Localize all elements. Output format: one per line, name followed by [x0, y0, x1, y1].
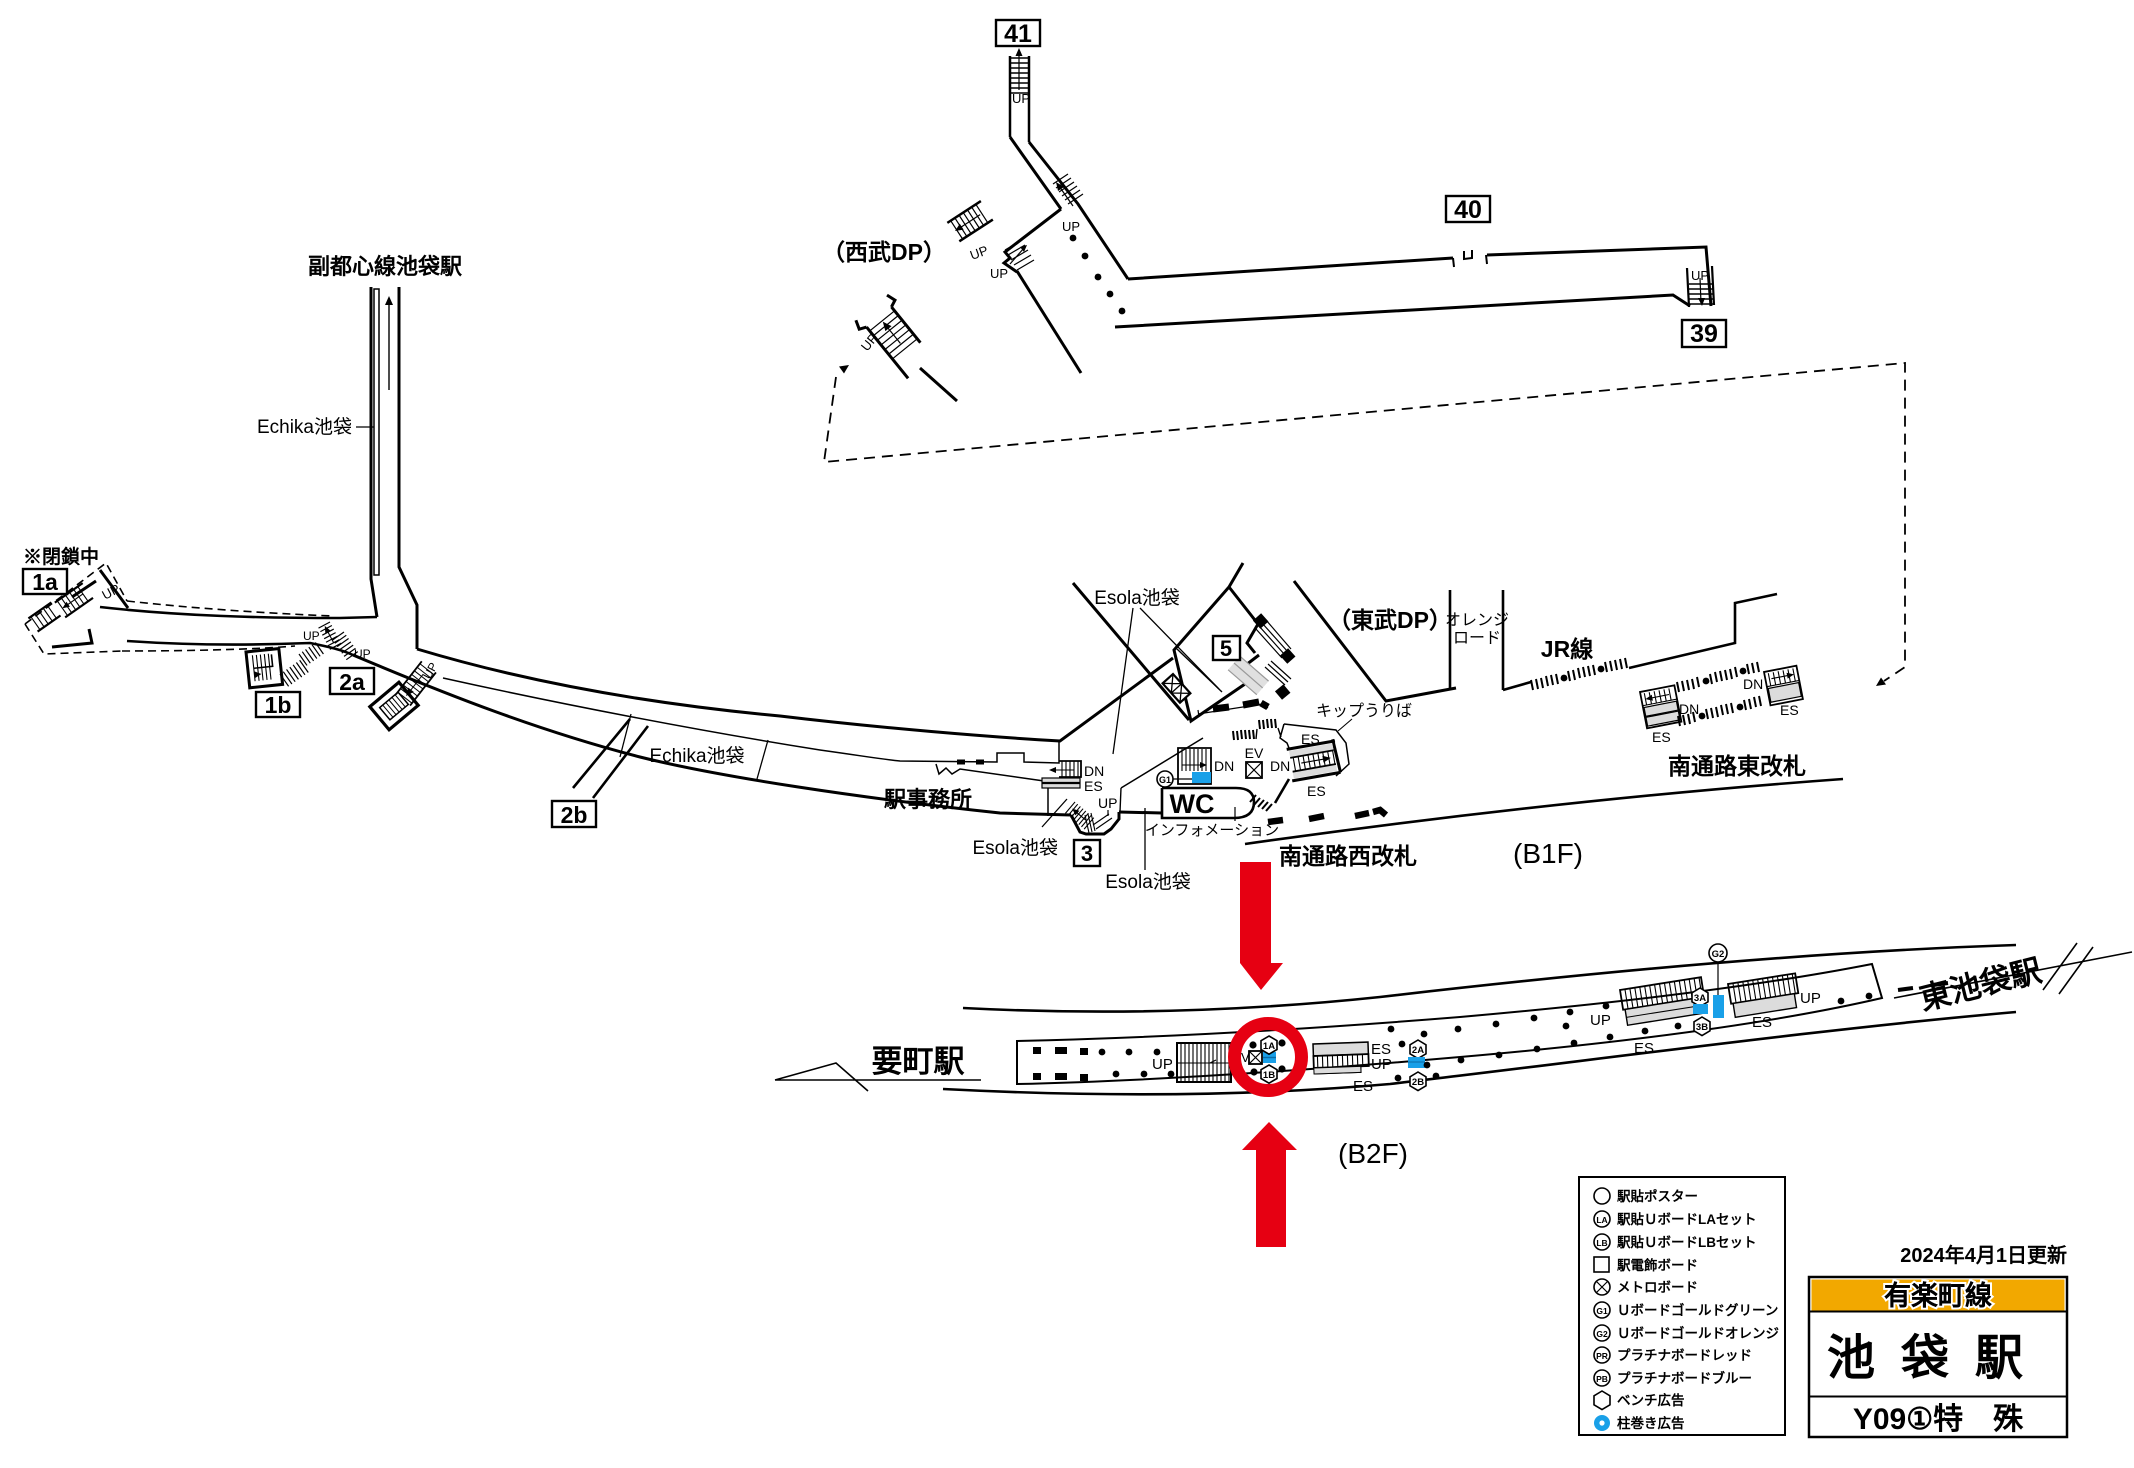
svg-text:池袋駅: 池袋駅 — [1827, 1332, 2049, 1385]
svg-text:LB: LB — [1596, 1238, 1607, 1248]
svg-text:G2: G2 — [1712, 949, 1725, 960]
svg-text:UP: UP — [1098, 795, 1117, 811]
svg-text:5: 5 — [1220, 636, 1232, 661]
svg-text:2a: 2a — [339, 669, 365, 695]
svg-text:副都心線池袋駅: 副都心線池袋駅 — [308, 254, 462, 279]
svg-text:UP: UP — [1371, 1056, 1392, 1073]
svg-text:DN: DN — [1084, 763, 1104, 779]
svg-text:JR線: JR線 — [1541, 636, 1593, 662]
svg-text:UP: UP — [303, 629, 320, 643]
svg-text:Ｕボードゴールドオレンジ: Ｕボードゴールドオレンジ — [1617, 1325, 1779, 1341]
svg-text:(B1F): (B1F) — [1513, 838, 1583, 869]
svg-text:PB: PB — [1596, 1374, 1608, 1384]
svg-text:駅事務所: 駅事務所 — [884, 787, 972, 812]
svg-text:ES: ES — [1780, 702, 1799, 718]
svg-text:Echika池袋: Echika池袋 — [649, 745, 744, 767]
svg-text:1A: 1A — [1263, 1041, 1275, 1052]
svg-text:WC: WC — [1170, 789, 1215, 819]
svg-text:UP: UP — [1062, 219, 1080, 234]
svg-text:Echika池袋: Echika池袋 — [257, 416, 352, 438]
svg-text:南通路西改札: 南通路西改札 — [1279, 843, 1417, 869]
svg-text:ロード: ロード — [1453, 630, 1501, 647]
svg-text:G1: G1 — [1159, 775, 1171, 785]
svg-text:1a: 1a — [32, 569, 58, 595]
svg-text:Esola池袋: Esola池袋 — [972, 837, 1058, 859]
svg-text:ES: ES — [1084, 778, 1103, 794]
svg-text:駅貼ポスター: 駅貼ポスター — [1617, 1188, 1698, 1204]
svg-text:柱巻き広告: 柱巻き広告 — [1617, 1415, 1685, 1431]
svg-text:インフォメーション: インフォメーション — [1145, 822, 1279, 839]
svg-text:南通路東改札: 南通路東改札 — [1668, 753, 1806, 779]
svg-text:ES: ES — [1634, 1040, 1654, 1057]
svg-text:ベンチ広告: ベンチ広告 — [1617, 1392, 1685, 1408]
svg-text:メトロボード: メトロボード — [1617, 1280, 1698, 1295]
svg-text:1b: 1b — [265, 692, 292, 718]
svg-text:41: 41 — [1004, 20, 1032, 48]
svg-text:(B2F): (B2F) — [1338, 1138, 1408, 1169]
svg-text:UP: UP — [1590, 1012, 1611, 1029]
svg-text:2024年4月1日更新: 2024年4月1日更新 — [1900, 1243, 2067, 1267]
svg-text:2B: 2B — [1412, 1077, 1424, 1088]
svg-text:要町駅: 要町駅 — [872, 1044, 965, 1079]
svg-text:ES: ES — [1307, 783, 1326, 799]
svg-text:駅貼ＵボードLBセット: 駅貼ＵボードLBセット — [1617, 1234, 1757, 1250]
svg-text:UP: UP — [1152, 1056, 1173, 1073]
svg-text:3B: 3B — [1696, 1022, 1708, 1033]
svg-text:Esola池袋: Esola池袋 — [1094, 587, 1180, 609]
svg-text:ES: ES — [1652, 729, 1671, 745]
svg-text:ES: ES — [1301, 731, 1320, 747]
svg-text:キップうりば: キップうりば — [1316, 702, 1412, 720]
svg-text:DN: DN — [1270, 758, 1290, 774]
svg-text:オレンジ: オレンジ — [1445, 612, 1509, 629]
svg-text:UP: UP — [1691, 268, 1709, 283]
svg-text:PR: PR — [1596, 1351, 1608, 1361]
svg-text:※閉鎖中: ※閉鎖中 — [23, 545, 99, 568]
svg-text:（西武DP）: （西武DP） — [822, 239, 946, 265]
svg-text:（東武DP）: （東武DP） — [1328, 607, 1452, 633]
svg-text:40: 40 — [1454, 196, 1482, 224]
svg-text:Ｕボードゴールドグリーン: Ｕボードゴールドグリーン — [1617, 1302, 1778, 1318]
svg-text:G2: G2 — [1596, 1329, 1608, 1339]
svg-text:Esola池袋: Esola池袋 — [1105, 871, 1191, 893]
svg-text:UP: UP — [1800, 990, 1821, 1007]
svg-text:駅貼ＵボードLAセット: 駅貼ＵボードLAセット — [1617, 1211, 1757, 1227]
svg-text:有楽町線: 有楽町線 — [1884, 1280, 1992, 1311]
svg-text:ES: ES — [1353, 1078, 1373, 1095]
svg-text:1B: 1B — [1263, 1070, 1275, 1081]
svg-text:UP: UP — [1012, 91, 1030, 106]
svg-text:プラチナボードブルー: プラチナボードブルー — [1617, 1370, 1752, 1386]
svg-text:Y09①特 殊: Y09①特 殊 — [1853, 1403, 2024, 1436]
svg-text:3A: 3A — [1694, 993, 1706, 1004]
svg-text:39: 39 — [1690, 320, 1718, 348]
svg-text:EV: EV — [1245, 745, 1264, 761]
svg-text:G1: G1 — [1596, 1306, 1608, 1316]
svg-text:ES: ES — [1752, 1014, 1772, 1031]
svg-text:DN: DN — [1743, 676, 1763, 692]
svg-text:2A: 2A — [1412, 1045, 1424, 1056]
svg-text:DN: DN — [1214, 758, 1234, 774]
svg-text:3: 3 — [1081, 841, 1093, 866]
svg-text:2b: 2b — [561, 802, 588, 828]
svg-text:UP: UP — [990, 266, 1008, 281]
svg-text:LA: LA — [1596, 1215, 1607, 1225]
svg-text:プラチナボードレッド: プラチナボードレッド — [1617, 1348, 1752, 1363]
svg-text:駅電飾ボード: 駅電飾ボード — [1617, 1257, 1698, 1273]
